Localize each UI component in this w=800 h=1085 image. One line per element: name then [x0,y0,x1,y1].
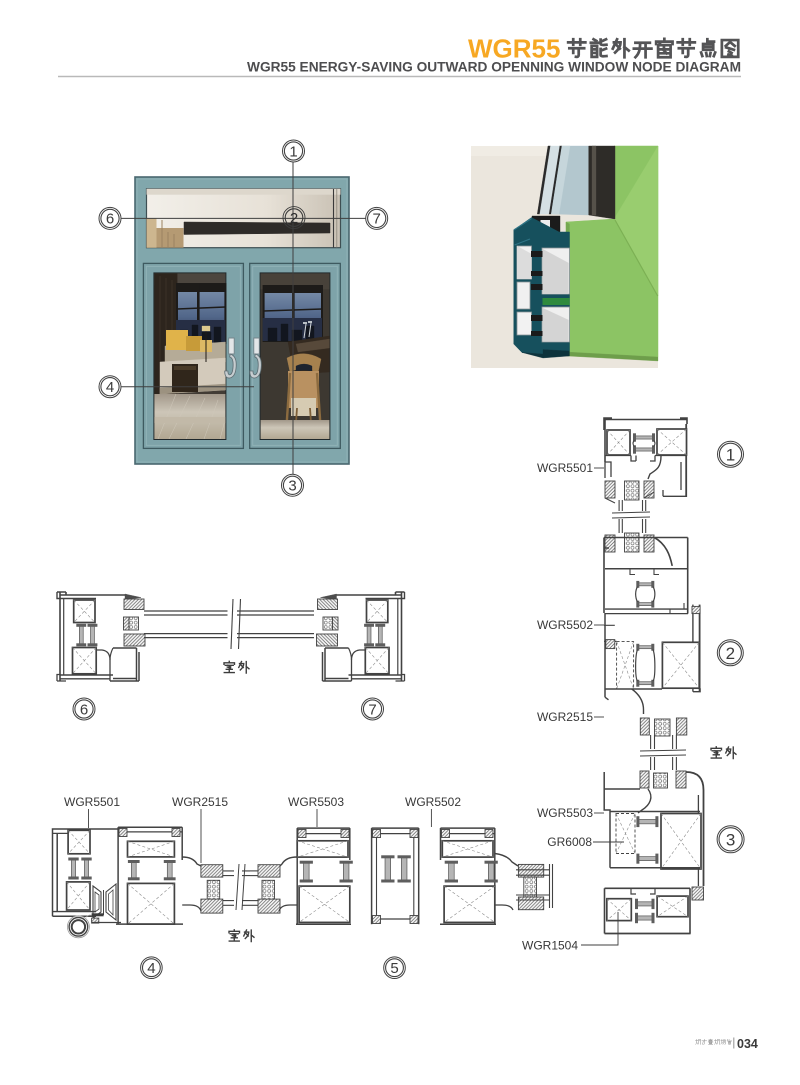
svg-text:WGR2515: WGR2515 [172,795,228,809]
svg-text:1: 1 [726,445,735,464]
svg-text:7: 7 [368,701,376,718]
svg-text:3: 3 [288,478,296,495]
svg-text:2: 2 [726,644,735,663]
svg-text:WGR2515: WGR2515 [537,710,593,724]
svg-text:WGR5502: WGR5502 [405,795,461,809]
svg-text:WGR5502: WGR5502 [537,618,593,632]
svg-text:WGR5501: WGR5501 [64,795,120,809]
svg-text:034: 034 [737,1037,758,1051]
svg-text:4: 4 [147,960,155,977]
svg-text:WGR5503: WGR5503 [288,795,344,809]
svg-text:1: 1 [289,143,297,160]
svg-text:WGR1504: WGR1504 [522,939,578,953]
svg-text:5: 5 [390,960,398,977]
svg-text:2: 2 [290,210,298,227]
svg-text:6: 6 [106,211,114,228]
svg-text:6: 6 [80,701,88,718]
svg-text:WGR55 ENERGY-SAVING OUTWARD OP: WGR55 ENERGY-SAVING OUTWARD OPENNING WIN… [247,60,741,75]
svg-text:GR6008: GR6008 [547,835,592,849]
svg-text:7: 7 [373,211,381,228]
svg-text:WGR5503: WGR5503 [537,806,593,820]
svg-text:WGR5501: WGR5501 [537,461,593,475]
svg-text:4: 4 [106,379,114,396]
svg-text:3: 3 [726,830,735,849]
